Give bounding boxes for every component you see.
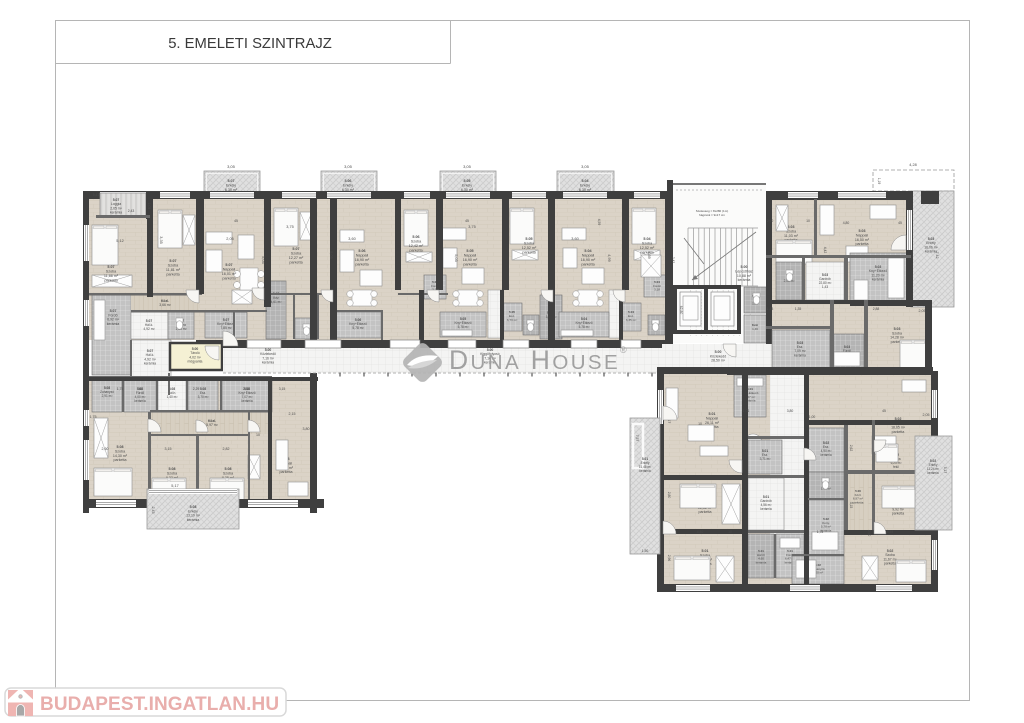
svg-text:1,43: 1,43: [767, 307, 774, 311]
svg-text:4,42: 4,42: [823, 247, 827, 254]
svg-text:3,80: 3,80: [787, 409, 794, 413]
svg-text:62,80: 62,80: [679, 306, 683, 315]
svg-text:3,75: 3,75: [468, 225, 475, 229]
svg-text:1,75: 1,75: [817, 530, 824, 534]
svg-text:Szélesség = 8x280 (1m)hágcsók: Szélesség = 8x280 (1m)hágcsók = 9x17 cm: [696, 209, 728, 217]
svg-text:10: 10: [728, 530, 732, 534]
svg-text:1,75: 1,75: [90, 415, 97, 419]
svg-text:4,59: 4,59: [647, 251, 651, 258]
svg-text:2,80: 2,80: [667, 492, 671, 499]
svg-text:45: 45: [882, 409, 886, 413]
svg-text:2,90: 2,90: [767, 219, 774, 223]
svg-text:1,00: 1,00: [809, 415, 816, 419]
svg-text:2,96: 2,96: [667, 555, 671, 562]
svg-text:3,15: 3,15: [165, 447, 172, 451]
svg-text:4,45: 4,45: [887, 530, 894, 534]
svg-text:2,05: 2,05: [923, 413, 930, 417]
svg-text:2,88: 2,88: [873, 307, 880, 311]
svg-text:1,35: 1,35: [795, 307, 802, 311]
svg-text:1,05: 1,05: [147, 203, 151, 210]
svg-text:3,35: 3,35: [159, 236, 163, 243]
svg-text:45: 45: [898, 221, 902, 225]
svg-text:BUDAPEST.INGATLAN.HU: BUDAPEST.INGATLAN.HU: [40, 694, 279, 715]
svg-text:10: 10: [806, 219, 810, 223]
svg-text:2,82: 2,82: [223, 447, 230, 451]
svg-text:5,17: 5,17: [943, 467, 947, 474]
svg-text:2,62: 2,62: [849, 445, 853, 452]
svg-text:4,59: 4,59: [597, 219, 601, 226]
svg-text:10: 10: [698, 422, 702, 426]
svg-text:3,60: 3,60: [348, 237, 355, 241]
svg-text:1,50: 1,50: [642, 549, 649, 553]
svg-text:10: 10: [138, 387, 142, 391]
svg-text:2,05: 2,05: [919, 309, 926, 313]
svg-text:5,05: 5,05: [261, 256, 265, 263]
svg-text:2,43: 2,43: [128, 209, 135, 213]
svg-text:1,75: 1,75: [117, 387, 124, 391]
svg-text:5,05: 5,05: [329, 251, 333, 258]
svg-text:3,05: 3,05: [463, 164, 472, 169]
svg-text:1,19: 1,19: [877, 178, 881, 185]
svg-text:3,60: 3,60: [571, 237, 578, 241]
svg-text:5,17: 5,17: [171, 484, 178, 488]
svg-text:5,05: 5,05: [454, 254, 458, 261]
svg-text:5,12: 5,12: [116, 239, 123, 243]
svg-text:3,80: 3,80: [303, 427, 310, 431]
svg-text:®: ®: [620, 345, 627, 355]
svg-text:3,15: 3,15: [279, 387, 286, 391]
svg-text:3,15: 3,15: [849, 502, 853, 509]
svg-text:2,45: 2,45: [151, 507, 155, 514]
svg-text:45: 45: [234, 219, 238, 223]
svg-text:Kézi1,46: Kézi1,46: [752, 323, 758, 331]
svg-text:1,06: 1,06: [743, 409, 750, 413]
svg-text:10: 10: [256, 433, 260, 437]
svg-text:2,05: 2,05: [226, 237, 233, 241]
svg-text:3,05: 3,05: [581, 164, 590, 169]
svg-text:2,43: 2,43: [671, 257, 675, 264]
svg-text:3,05: 3,05: [227, 164, 236, 169]
svg-text:4,80: 4,80: [843, 221, 850, 225]
svg-text:3,05: 3,05: [344, 164, 353, 169]
svg-text:45: 45: [465, 219, 469, 223]
svg-text:4,28: 4,28: [909, 163, 916, 167]
svg-text:3,75: 3,75: [286, 225, 293, 229]
svg-text:4,40: 4,40: [697, 530, 704, 534]
svg-text:5,41: 5,41: [93, 193, 100, 197]
svg-text:7,42: 7,42: [935, 252, 939, 259]
svg-text:2,15: 2,15: [289, 412, 296, 416]
svg-text:7,57: 7,57: [635, 435, 639, 442]
svg-text:2,29: 2,29: [193, 387, 200, 391]
svg-text:2,36: 2,36: [243, 387, 250, 391]
svg-text:2,60: 2,60: [867, 530, 871, 537]
svg-text:4,99: 4,99: [607, 254, 611, 261]
svg-text:5. EMELETI SZINTRAJZ: 5. EMELETI SZINTRAJZ: [168, 36, 332, 52]
svg-text:2,60: 2,60: [102, 447, 109, 451]
